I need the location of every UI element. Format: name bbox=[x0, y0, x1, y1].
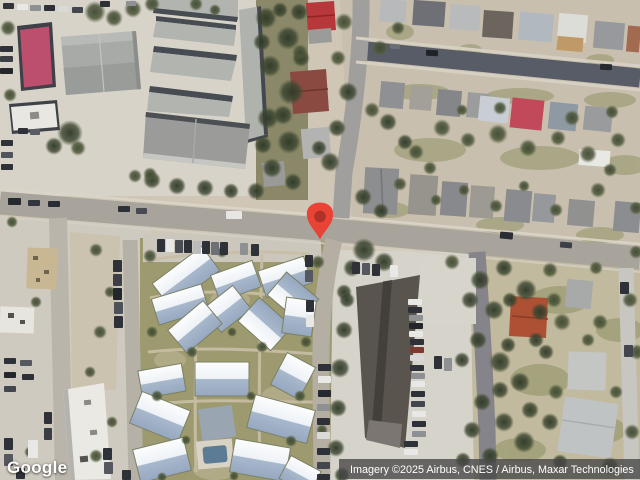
svg-text:Imagery ©2025 Airbus, CNES / A: Imagery ©2025 Airbus, CNES / Airbus, Max… bbox=[350, 464, 634, 476]
svg-text:Google: Google bbox=[7, 458, 67, 477]
